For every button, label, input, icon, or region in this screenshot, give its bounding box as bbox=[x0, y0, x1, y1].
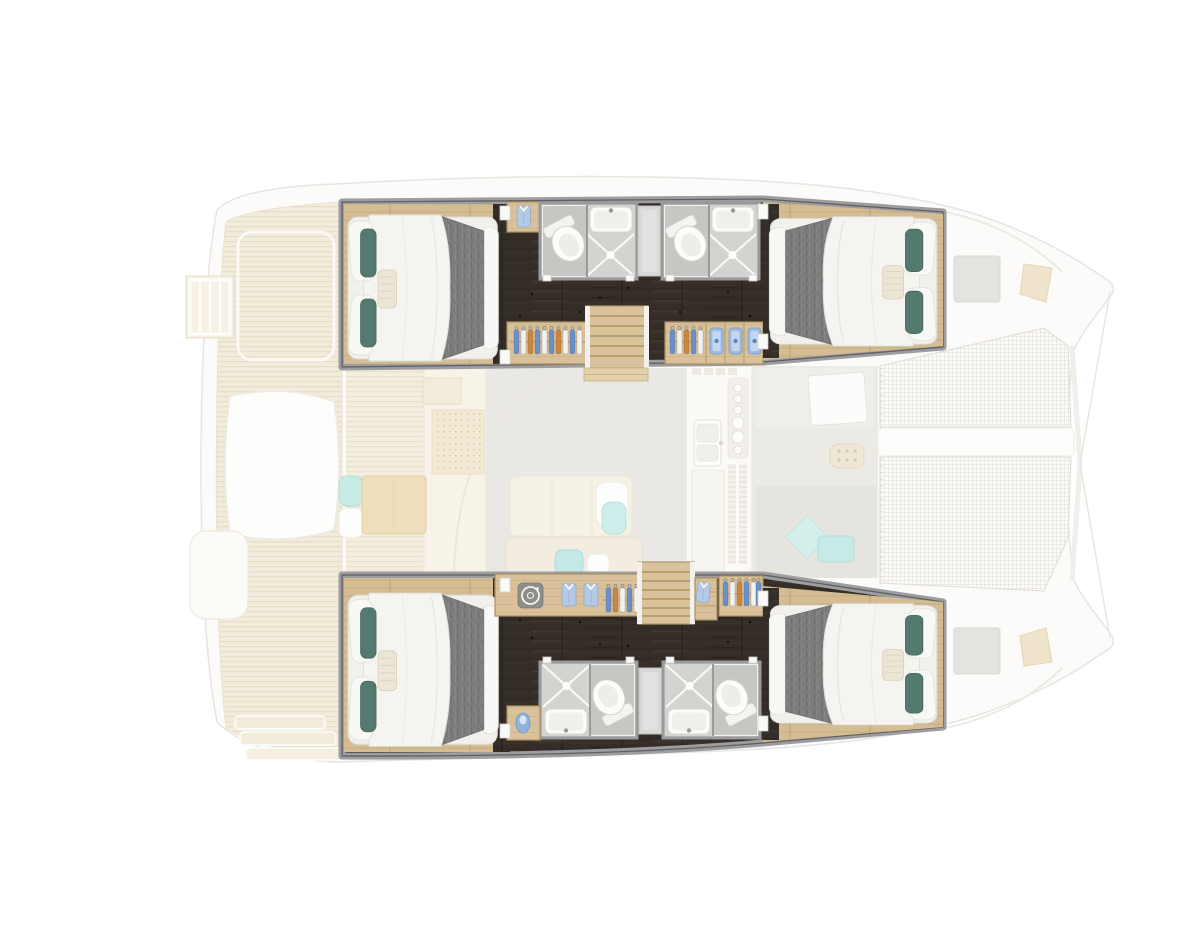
saloon-walkway bbox=[346, 368, 424, 574]
bow-bridle-lines bbox=[1080, 292, 1110, 638]
cabin-port-aft bbox=[344, 204, 510, 364]
trampoline-starboard bbox=[880, 457, 1071, 591]
grill-pad bbox=[830, 444, 864, 468]
cabin-port-forward bbox=[763, 202, 943, 360]
tender bbox=[225, 391, 339, 539]
cabin-starboard-aft bbox=[344, 578, 510, 752]
cockpit-cushion-aqua bbox=[339, 476, 363, 506]
bath-divider bbox=[638, 206, 661, 276]
cockpit-table bbox=[362, 476, 426, 534]
perforated-panel bbox=[432, 410, 484, 474]
cabinet-port-aft bbox=[507, 202, 540, 232]
shelf-unit-starboard bbox=[695, 578, 717, 620]
cabin-starboard-forward bbox=[763, 586, 943, 742]
bathroom-port-forward bbox=[662, 203, 759, 279]
cabinet-starboard-aft bbox=[507, 706, 540, 740]
starboard-hull bbox=[342, 562, 943, 756]
deck-hatch-starboard bbox=[954, 628, 1000, 674]
deck-hatch-port bbox=[954, 256, 1000, 302]
fore-table bbox=[808, 372, 867, 426]
transom-step bbox=[190, 531, 248, 619]
port-hull bbox=[342, 199, 943, 381]
galley bbox=[686, 366, 752, 578]
swim-ladder bbox=[186, 276, 234, 338]
bathroom-starboard-aft bbox=[540, 662, 637, 738]
bathroom-port-aft bbox=[540, 203, 637, 279]
stove-knobs bbox=[728, 378, 748, 458]
forward-cockpit bbox=[752, 366, 878, 578]
aqua-cushion bbox=[555, 550, 583, 574]
bathroom-starboard-forward bbox=[663, 662, 760, 738]
floorplan bbox=[40, 16, 1200, 915]
nav-desk bbox=[423, 378, 461, 404]
wardrobe-port-aft bbox=[507, 322, 591, 364]
floorplan-canvas bbox=[40, 16, 1200, 915]
stairs-port bbox=[584, 306, 649, 381]
wardrobe-starboard-aft bbox=[495, 574, 639, 616]
galley-sink bbox=[694, 420, 723, 466]
aqua-towel bbox=[602, 502, 626, 534]
cockpit-cushion-white bbox=[339, 508, 363, 538]
wardrobe-starboard-forward bbox=[719, 576, 763, 616]
foredeck-walkway bbox=[878, 428, 1074, 456]
wardrobe-port-forward bbox=[665, 322, 763, 364]
stairs-starboard bbox=[637, 562, 695, 624]
forward-crossbeam bbox=[1072, 346, 1080, 581]
bath-divider bbox=[639, 668, 662, 734]
